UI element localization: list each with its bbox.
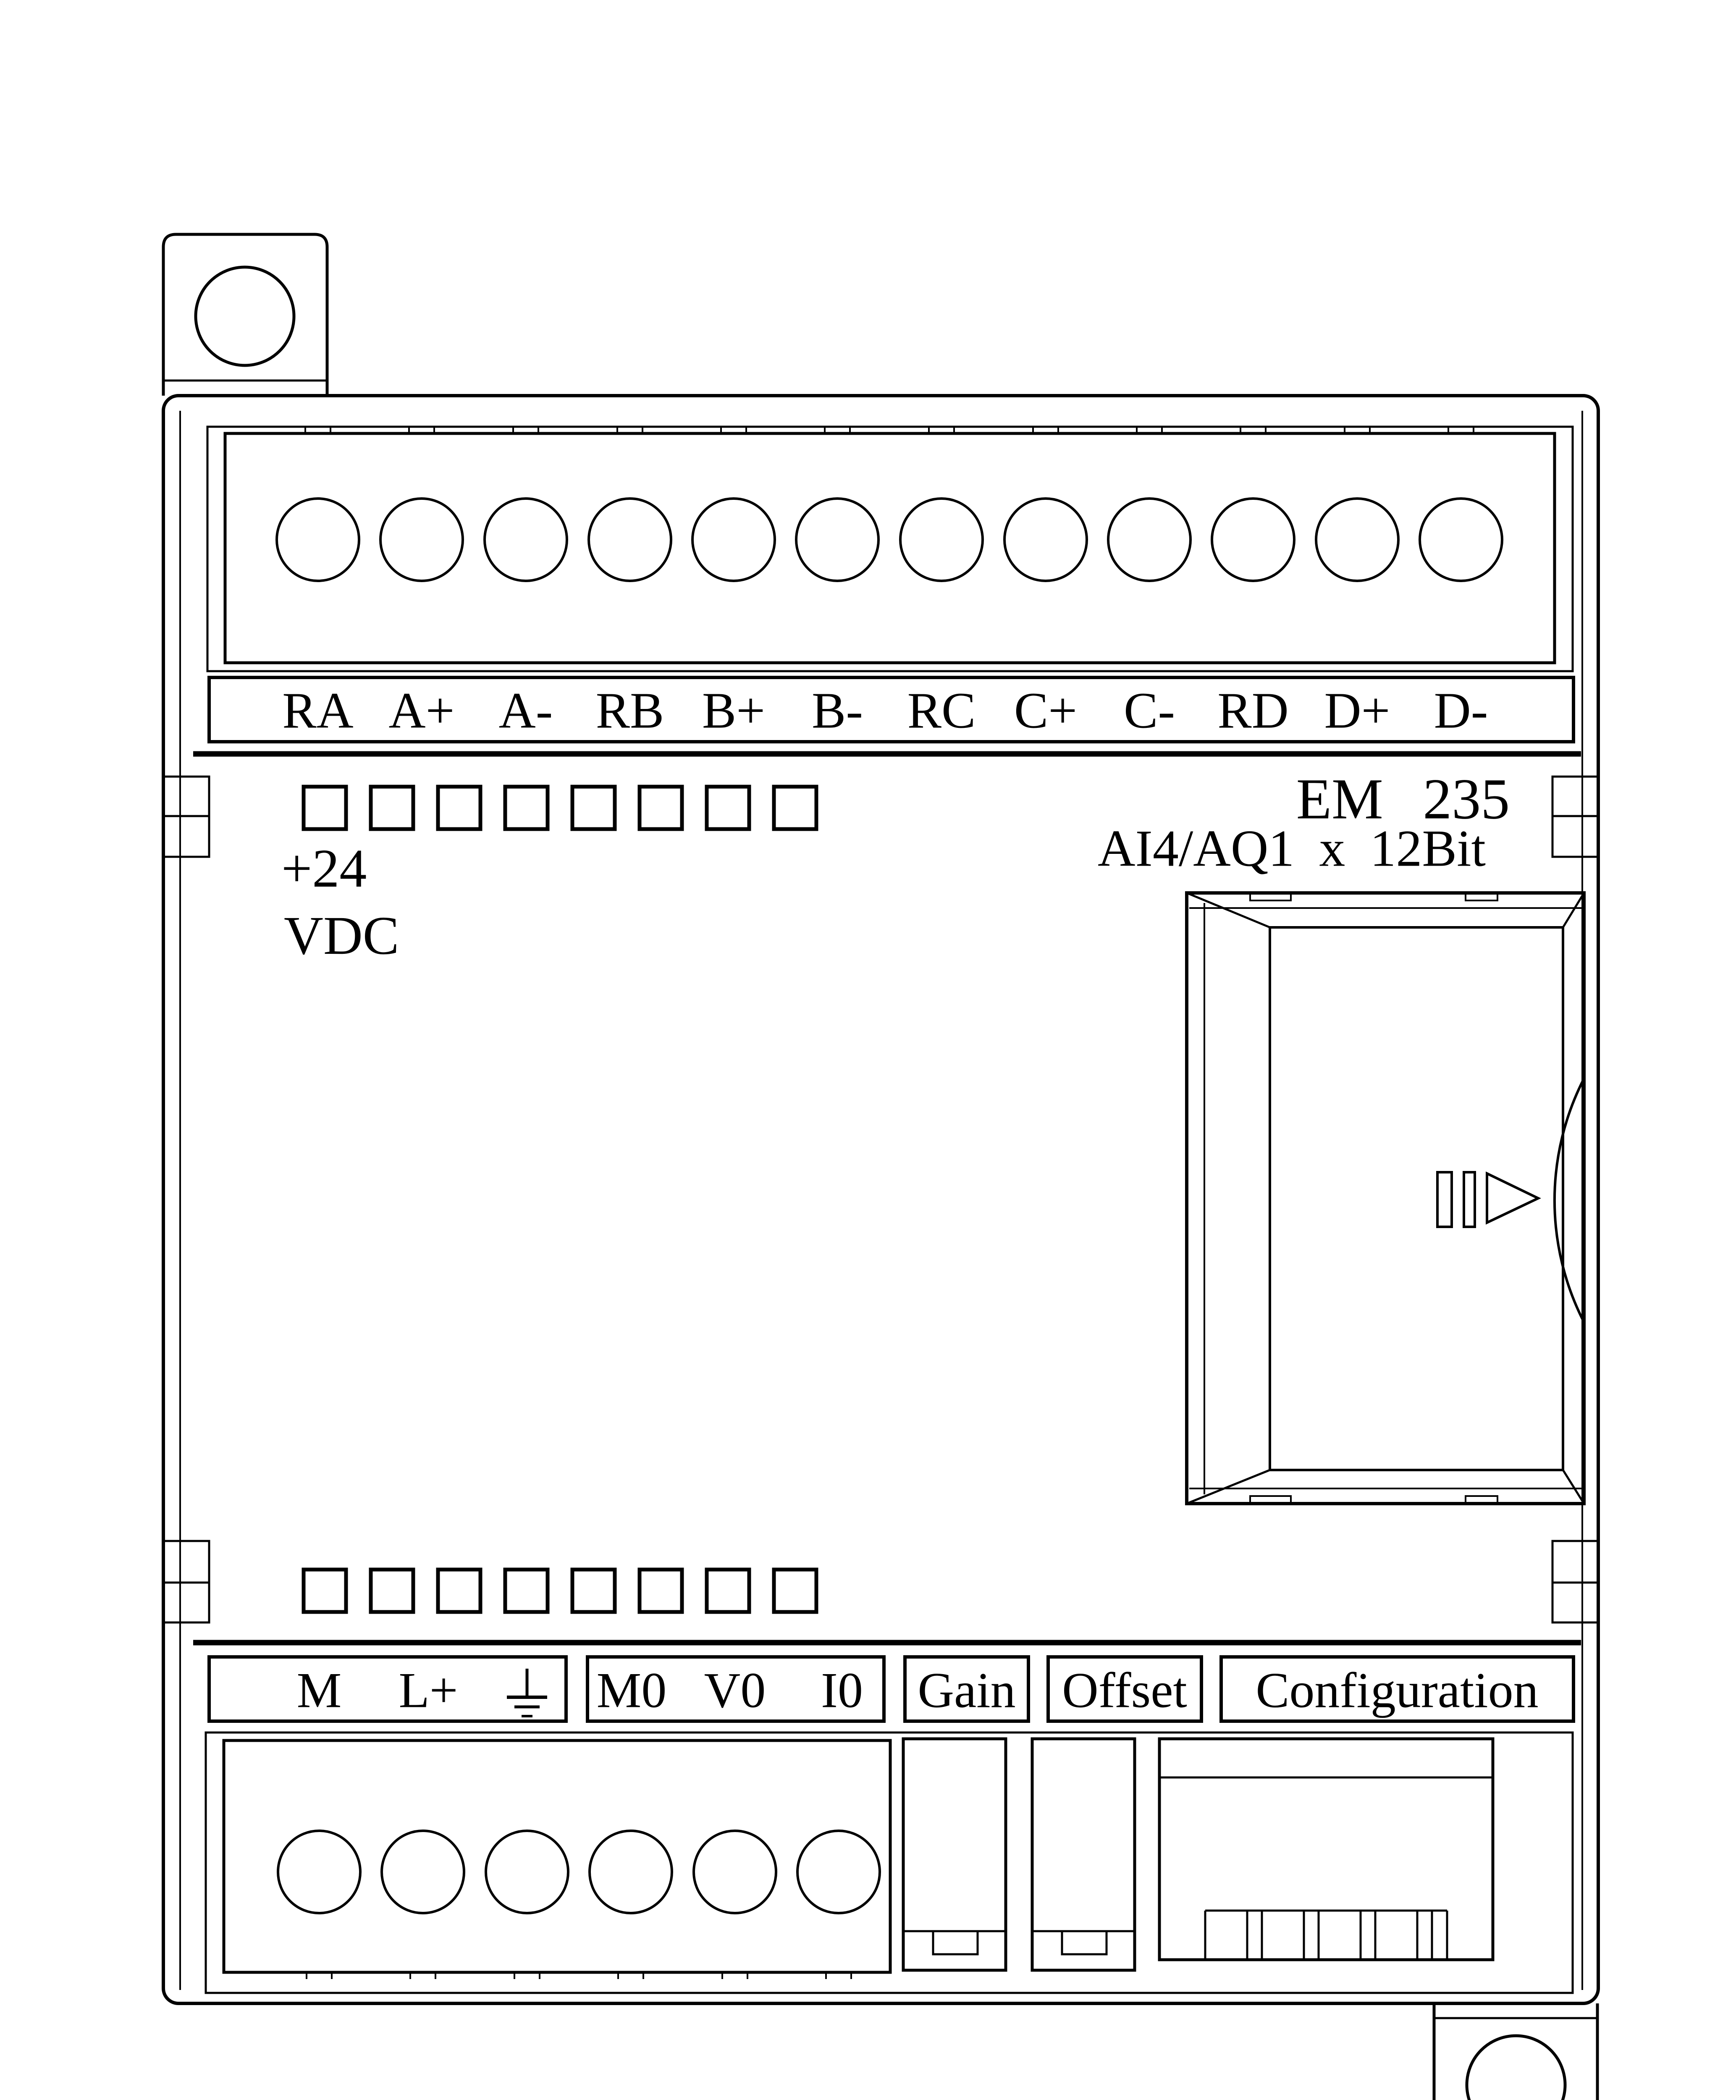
module-outline — [163, 396, 1598, 2003]
mounting-tab-top-left — [163, 234, 327, 396]
terminal-label-rb: RB — [596, 682, 664, 739]
led-row-top — [304, 787, 816, 829]
terminal-screw-hole — [486, 1831, 568, 1913]
cartridge-bevels — [1187, 893, 1584, 1504]
led-row-bottom — [304, 1570, 816, 1612]
terminal-screw-hole — [278, 1831, 360, 1913]
terminal-label-ra: RA — [282, 682, 353, 739]
terminal-label-b-minus: B- — [812, 682, 863, 739]
led-indicator — [505, 1570, 548, 1612]
terminal-screw-hole — [694, 1831, 776, 1913]
terminal-label-v0: V0 — [704, 1662, 766, 1718]
terminal-label-a-minus: A- — [499, 682, 553, 739]
mounting-tab-bottom-right — [1434, 2003, 1597, 2100]
led-indicator — [572, 1570, 615, 1612]
top-terminal-strip — [225, 433, 1555, 663]
cartridge-inner-panel — [1270, 927, 1563, 1470]
module-spec-subtitle: AI4/AQ1 x 12Bit — [1098, 820, 1486, 877]
led-indicator — [438, 787, 480, 829]
top-terminal-screws — [277, 499, 1502, 581]
led-indicator — [640, 787, 682, 829]
gain-label: Gain — [918, 1662, 1015, 1718]
terminal-label-m: M — [297, 1662, 342, 1718]
terminal-screw-hole — [382, 1831, 464, 1913]
cartridge-outer-frame — [1187, 893, 1584, 1504]
terminal-screw-hole — [589, 499, 671, 581]
led-indicator — [438, 1570, 480, 1612]
led-indicator — [371, 787, 413, 829]
mounting-tab-outline — [163, 234, 327, 396]
led-indicator — [707, 787, 749, 829]
insert-direction-icon — [1437, 1172, 1538, 1227]
led-indicator — [304, 787, 346, 829]
offset-adjust-slot — [1062, 1931, 1107, 1954]
terminal-screw-hole — [797, 1831, 880, 1913]
terminal-screw-hole — [380, 499, 463, 581]
power-terminal-label-box — [209, 1657, 566, 1721]
terminal-label-d-minus: D- — [1434, 682, 1488, 739]
bottom-terminal-screws — [278, 1831, 880, 1913]
terminal-label-i0: I0 — [821, 1662, 863, 1718]
terminal-label-m0: M0 — [597, 1662, 667, 1718]
terminal-label-b-plus: B+ — [702, 682, 765, 739]
cartridge-slot-door — [1187, 893, 1584, 1504]
bottom-label-row: M L+ M0 V0 I0 Gain Offset Configuration — [209, 1657, 1573, 1721]
mounting-hole-icon — [1467, 2036, 1565, 2100]
terminal-label-l-plus: L+ — [399, 1662, 458, 1718]
led-indicator — [774, 1570, 816, 1612]
terminal-screw-hole — [485, 499, 567, 581]
gain-adjust-slot — [933, 1931, 978, 1954]
dip-switch-teeth — [1205, 1911, 1447, 1960]
top-terminal-block — [207, 427, 1573, 671]
terminal-label-c-minus: C- — [1124, 682, 1175, 739]
cartridge-latch-notches — [1250, 893, 1497, 1504]
top-label-row: RA A+ A- RB B+ B- RC C+ C- RD D+ D- — [209, 677, 1573, 742]
din-clip-notches — [163, 777, 1598, 1622]
terminal-screw-hole — [796, 499, 878, 581]
terminal-screw-hole — [1108, 499, 1191, 581]
terminal-label-rd: RD — [1217, 682, 1288, 739]
terminal-label-d-plus: D+ — [1324, 682, 1390, 739]
terminal-screw-hole — [277, 499, 359, 581]
terminal-screw-hole — [1316, 499, 1398, 581]
led-indicator — [572, 787, 615, 829]
led-indicator — [707, 1570, 749, 1612]
terminal-screw-hole — [1004, 499, 1087, 581]
offset-label: Offset — [1062, 1662, 1187, 1718]
finger-recess-arc — [1555, 1079, 1584, 1322]
mounting-hole-icon — [196, 267, 294, 365]
terminal-label-rc: RC — [907, 682, 976, 739]
offset-potentiometer — [1032, 1739, 1135, 1970]
led-indicator — [304, 1570, 346, 1612]
terminal-screw-hole — [692, 499, 775, 581]
power-label-line1: +24 — [281, 838, 367, 899]
terminal-screw-hole — [900, 499, 983, 581]
em235-module-diagram: RA A+ A- RB B+ B- RC C+ C- RD D+ D- +24 … — [0, 0, 1736, 2100]
led-indicator — [505, 787, 548, 829]
terminal-label-c-plus: C+ — [1014, 682, 1077, 739]
configuration-label: Configuration — [1256, 1662, 1538, 1718]
terminal-screw-hole — [1420, 499, 1502, 581]
power-label-line2: VDC — [284, 906, 399, 966]
earth-ground-icon — [507, 1669, 547, 1716]
bottom-terminal-strip — [224, 1740, 890, 1972]
terminal-label-a-plus: A+ — [389, 682, 455, 739]
led-indicator — [774, 787, 816, 829]
led-indicator — [640, 1570, 682, 1612]
module-body — [163, 396, 1598, 2003]
gain-potentiometer — [903, 1739, 1006, 1970]
bottom-recess — [206, 1732, 1573, 1993]
top-terminal-recess — [207, 427, 1573, 671]
terminal-screw-hole — [590, 1831, 672, 1913]
terminal-screw-hole — [1212, 499, 1294, 581]
led-indicator — [371, 1570, 413, 1612]
configuration-dip-switch-block — [1159, 1739, 1493, 1960]
